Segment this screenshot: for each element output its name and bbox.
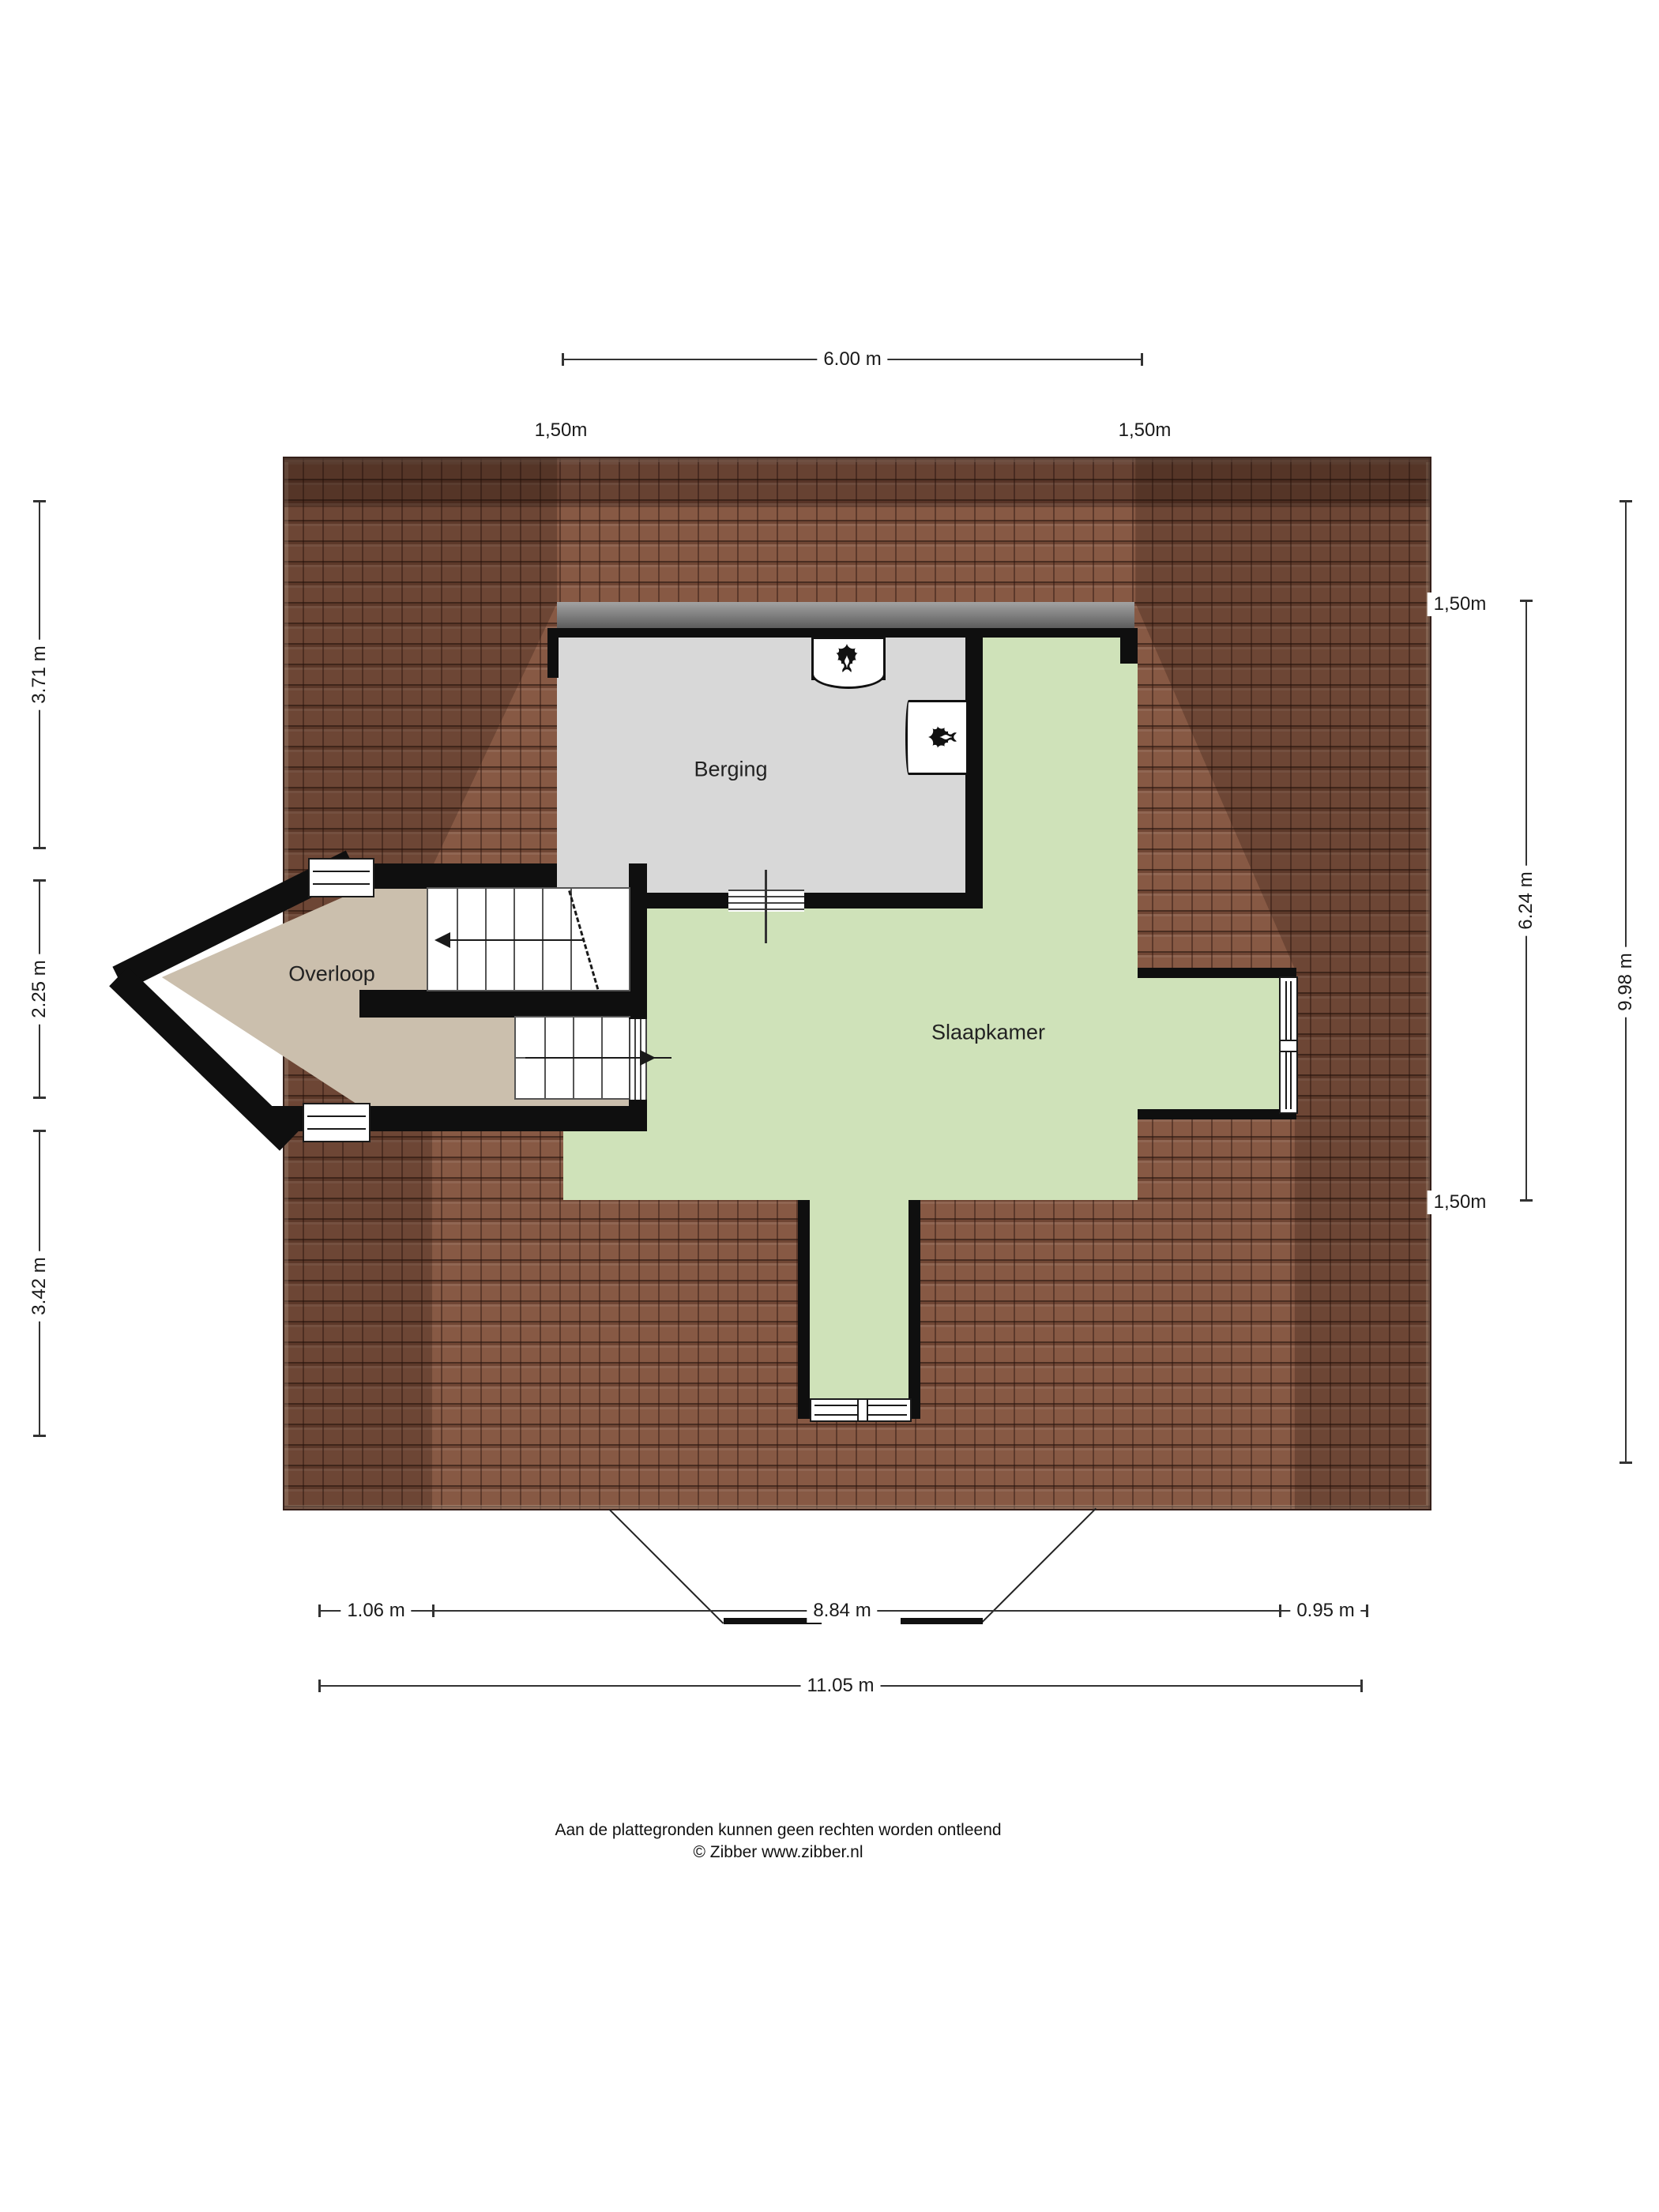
tick [33, 500, 46, 502]
footer-disclaimer: Aan de plattegronden kunnen geen rechten… [0, 1821, 1556, 1840]
dim-label-bottom-total: 11.05 m [801, 1674, 881, 1698]
footer-credit: © Zibber www.zibber.nl [0, 1843, 1556, 1862]
tick [33, 879, 46, 882]
stairwell-southeast-wall [629, 1098, 647, 1131]
flame-icon [927, 723, 958, 751]
tick [1279, 1604, 1281, 1617]
dim-label-bottom-right: 0.95 m [1290, 1599, 1360, 1623]
dim-label-right-eave-top: 1,50m [1428, 592, 1493, 616]
tick [318, 1680, 321, 1692]
dim-label-left-middle: 2.25 m [28, 954, 51, 1024]
stairwell-middle-wall [359, 990, 647, 1018]
slaapkamer-floor-east-dormer [1138, 978, 1284, 1109]
floorplan-page: { "rooms": { "berging": { "label": "Berg… [0, 0, 1659, 2212]
stair-arrow-head-upper [434, 932, 450, 948]
dim-label-top-width: 6.00 m [817, 348, 887, 371]
room-label-berging: Berging [694, 758, 767, 782]
berging-door-line [765, 870, 767, 943]
facade-leader-right [981, 1508, 1097, 1623]
tick [432, 1604, 434, 1617]
tick [1520, 600, 1533, 602]
east-dormer-window [1279, 976, 1298, 1114]
tick [1619, 1461, 1632, 1464]
slaapkamer-floor-southwest [563, 1131, 647, 1200]
tick [562, 353, 564, 366]
slaapkamer-floor-south-dormer [810, 1200, 908, 1406]
tick [1141, 353, 1143, 366]
dim-label-right-eave-bottom: 1,50m [1428, 1191, 1493, 1214]
facade-segment-right [901, 1618, 983, 1624]
stair-arrow-head-lower [640, 1050, 656, 1066]
tick [33, 1435, 46, 1437]
berging-bottom-wall [647, 893, 983, 908]
south-dormer-window [810, 1398, 912, 1422]
overloop-window-north [308, 858, 374, 897]
tick [33, 1130, 46, 1132]
boiler-unit-right [916, 700, 969, 775]
room-label-overloop: Overloop [288, 962, 375, 987]
tick [1366, 1604, 1368, 1617]
gable-wall-right-stub [1120, 628, 1138, 664]
slaapkamer-floor-column [983, 634, 1138, 1200]
room-label-slaapkamer: Slaapkamer [931, 1021, 1045, 1045]
overloop-window-south [303, 1103, 371, 1142]
gable-wall-left-stub [547, 628, 559, 678]
dim-label-bottom-middle: 8.84 m [807, 1599, 877, 1623]
dim-label-left-upper: 3.71 m [28, 639, 51, 709]
north-dormer-band [557, 602, 1134, 628]
tick [318, 1604, 321, 1617]
stair-arrow-line-upper [449, 939, 585, 941]
east-dormer-top-wall [1138, 968, 1296, 978]
slaapkamer-floor-west [647, 908, 983, 1200]
dim-label-eave-right: 1,50m [1112, 419, 1178, 442]
dim-label-left-lower: 3.42 m [28, 1251, 51, 1321]
tick [1520, 1199, 1533, 1202]
south-dormer-left-wall [798, 1200, 810, 1419]
flame-icon [833, 642, 861, 674]
dim-label-right-total: 9.98 m [1614, 946, 1638, 1017]
facade-leader-left [609, 1509, 724, 1624]
dim-label-right-inner: 6.24 m [1514, 865, 1538, 935]
dim-label-bottom-left: 1.06 m [340, 1599, 411, 1623]
east-dormer-bottom-wall [1138, 1109, 1296, 1119]
south-dormer-right-wall [908, 1200, 920, 1419]
dim-label-eave-left: 1,50m [529, 419, 594, 442]
roof-ridge-shade [284, 458, 1430, 507]
tick [1619, 500, 1632, 502]
tick [33, 847, 46, 849]
tick [33, 1097, 46, 1099]
boiler-right-arc [905, 700, 919, 775]
tick [1360, 1680, 1363, 1692]
